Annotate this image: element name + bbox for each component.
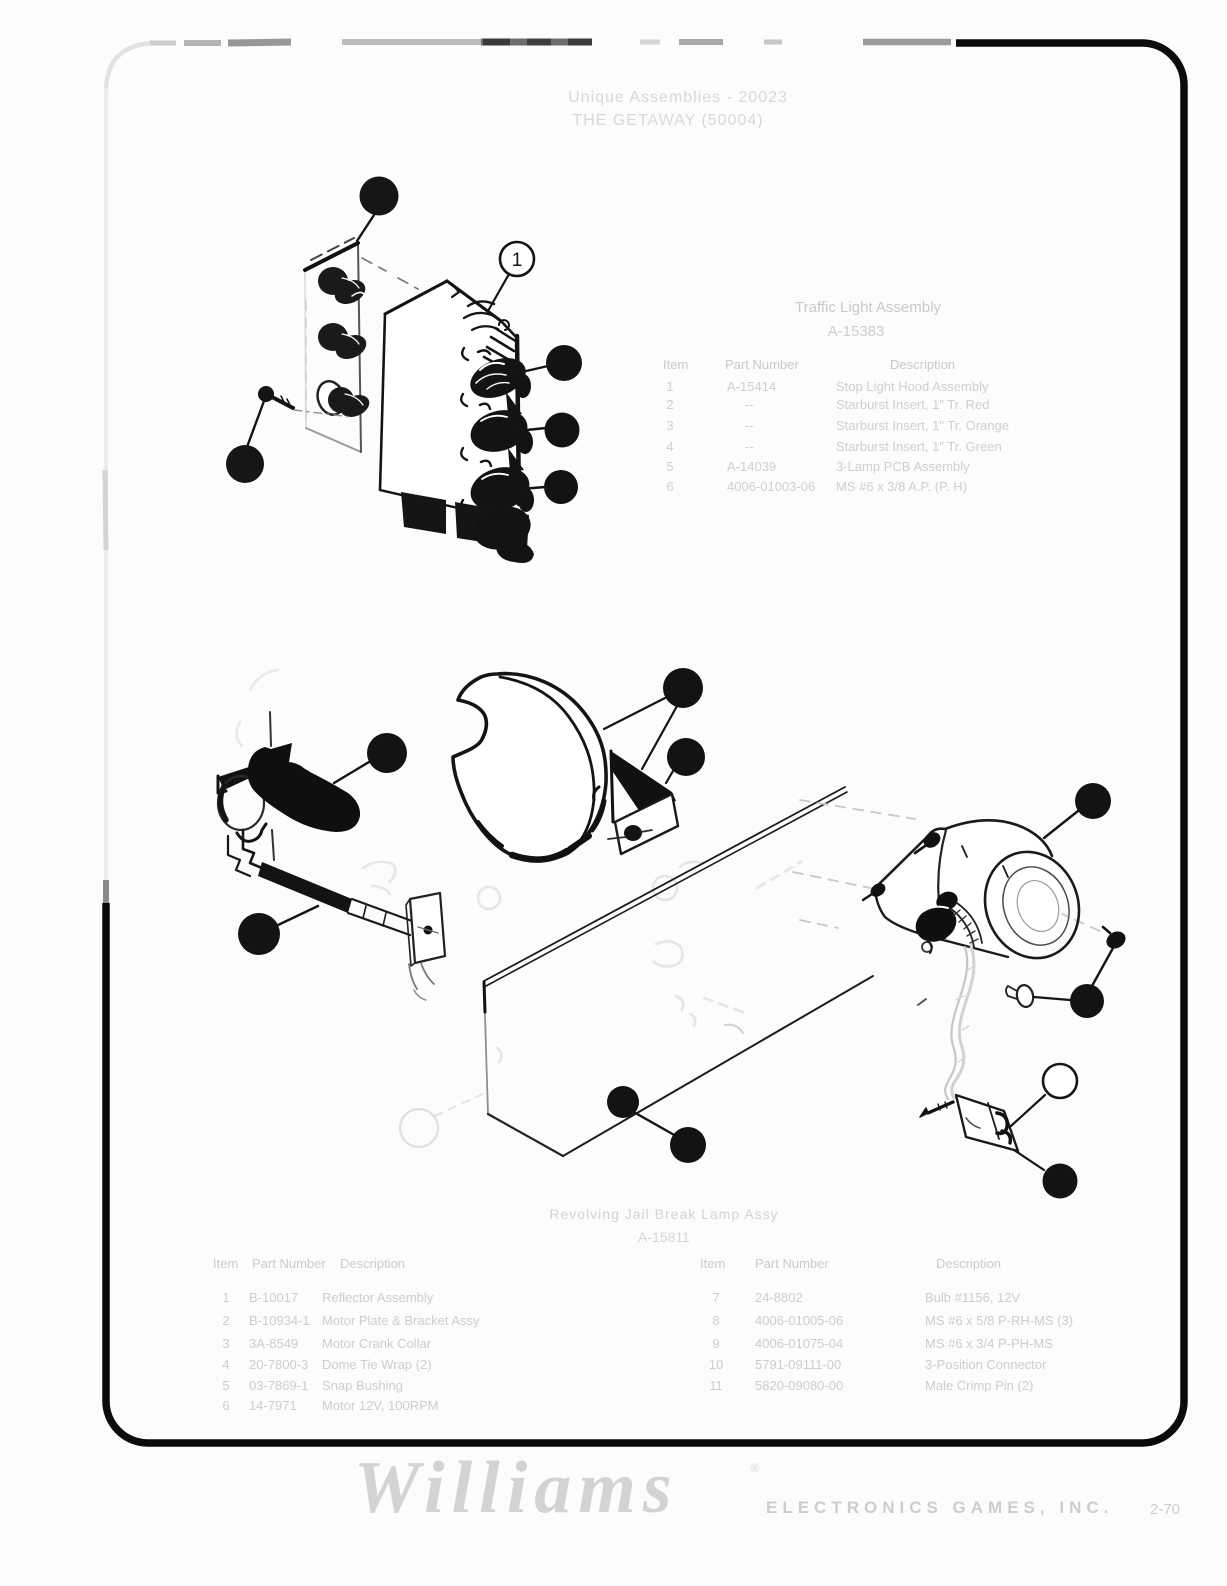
svg-text:Part Number: Part Number xyxy=(252,1256,326,1271)
svg-text:20-7800-3: 20-7800-3 xyxy=(249,1357,308,1372)
svg-text:Part Number: Part Number xyxy=(725,357,799,372)
svg-text:3: 3 xyxy=(222,1336,229,1351)
svg-text:Bulb #1156, 12V: Bulb #1156, 12V xyxy=(925,1290,1020,1305)
svg-text:3-Position Connector: 3-Position Connector xyxy=(925,1357,1047,1372)
svg-text:2: 2 xyxy=(222,1313,229,1328)
svg-text:6: 6 xyxy=(666,479,673,494)
svg-text:03-7869-1: 03-7869-1 xyxy=(249,1378,308,1393)
svg-text:4006-01075-04: 4006-01075-04 xyxy=(755,1336,843,1351)
svg-text:ELECTRONICS GAMES, INC.: ELECTRONICS GAMES, INC. xyxy=(766,1498,1113,1517)
svg-text:Revolving Jail Break Lamp Assy: Revolving Jail Break Lamp Assy xyxy=(549,1206,778,1222)
svg-text:5: 5 xyxy=(666,459,673,474)
svg-text:3: 3 xyxy=(666,418,673,433)
svg-text:--: -- xyxy=(745,439,754,454)
svg-text:Starburst Insert, 1" Tr. Orang: Starburst Insert, 1" Tr. Orange xyxy=(836,418,1009,433)
svg-text:Description: Description xyxy=(890,357,955,372)
svg-text:Reflector Assembly: Reflector Assembly xyxy=(322,1290,434,1305)
svg-text:10: 10 xyxy=(709,1357,723,1372)
svg-text:®: ® xyxy=(750,1460,760,1475)
svg-text:5820-09080-00: 5820-09080-00 xyxy=(755,1378,843,1393)
svg-text:3A-8549: 3A-8549 xyxy=(249,1336,298,1351)
svg-text:Description: Description xyxy=(936,1256,1001,1271)
svg-text:24-8802: 24-8802 xyxy=(755,1290,803,1305)
svg-text:Description: Description xyxy=(340,1256,405,1271)
svg-text:3-Lamp PCB Assembly: 3-Lamp PCB Assembly xyxy=(836,459,970,474)
svg-text:2: 2 xyxy=(666,397,673,412)
svg-text:Item: Item xyxy=(700,1256,725,1271)
svg-text:4006-01003-06: 4006-01003-06 xyxy=(727,479,815,494)
svg-text:--: -- xyxy=(745,418,754,433)
svg-text:Item: Item xyxy=(663,357,688,372)
svg-text:Snap Bushing: Snap Bushing xyxy=(322,1378,403,1393)
svg-text:A-15811: A-15811 xyxy=(638,1229,690,1245)
svg-text:Part Number: Part Number xyxy=(755,1256,829,1271)
svg-text:Traffic Light Assembly: Traffic Light Assembly xyxy=(795,299,941,316)
svg-text:6: 6 xyxy=(222,1398,229,1413)
svg-text:Stop Light Hood Assembly: Stop Light Hood Assembly xyxy=(836,379,989,394)
svg-text:Motor 12V, 100RPM: Motor 12V, 100RPM xyxy=(322,1398,439,1413)
svg-text:--: -- xyxy=(745,397,754,412)
svg-text:4: 4 xyxy=(222,1357,229,1372)
svg-text:Starburst Insert, 1" Tr. Green: Starburst Insert, 1" Tr. Green xyxy=(836,439,1002,454)
svg-text:A-15414: A-15414 xyxy=(727,379,776,394)
svg-text:A-15383: A-15383 xyxy=(828,323,885,340)
svg-text:7: 7 xyxy=(712,1290,719,1305)
svg-text:Male Crimp Pin (2): Male Crimp Pin (2) xyxy=(925,1378,1033,1393)
svg-text:THE GETAWAY (50004): THE GETAWAY (50004) xyxy=(572,112,763,129)
svg-text:Williams: Williams xyxy=(354,1447,679,1529)
svg-text:2-70: 2-70 xyxy=(1150,1501,1180,1518)
svg-text:9: 9 xyxy=(712,1336,719,1351)
svg-text:4006-01005-06: 4006-01005-06 xyxy=(755,1313,843,1328)
svg-text:14-7971: 14-7971 xyxy=(249,1398,297,1413)
svg-text:4: 4 xyxy=(666,439,673,454)
svg-text:A-14039: A-14039 xyxy=(727,459,776,474)
svg-text:1: 1 xyxy=(222,1290,229,1305)
svg-text:B-10934-1: B-10934-1 xyxy=(249,1313,310,1328)
svg-text:MS #6 x 3/4 P-PH-MS: MS #6 x 3/4 P-PH-MS xyxy=(925,1336,1053,1351)
svg-text:11: 11 xyxy=(709,1378,723,1393)
svg-text:Motor Crank Collar: Motor Crank Collar xyxy=(322,1336,432,1351)
svg-text:5791-09111-00: 5791-09111-00 xyxy=(755,1357,841,1372)
svg-text:MS #6 x 3/8 A.P. (P. H): MS #6 x 3/8 A.P. (P. H) xyxy=(836,479,967,494)
svg-text:B-10017: B-10017 xyxy=(249,1290,298,1305)
svg-text:Unique Assemblies - 20023: Unique Assemblies - 20023 xyxy=(568,89,788,106)
svg-text:Motor Plate & Bracket Assy: Motor Plate & Bracket Assy xyxy=(322,1313,480,1328)
svg-text:5: 5 xyxy=(222,1378,229,1393)
svg-text:MS #6 x 5/8 P-RH-MS (3): MS #6 x 5/8 P-RH-MS (3) xyxy=(925,1313,1073,1328)
svg-text:Dome Tie Wrap (2): Dome Tie Wrap (2) xyxy=(322,1357,432,1372)
svg-text:Item: Item xyxy=(213,1256,238,1271)
svg-text:8: 8 xyxy=(712,1313,719,1328)
svg-text:Starburst Insert, 1" Tr. Red: Starburst Insert, 1" Tr. Red xyxy=(836,397,989,412)
svg-text:1: 1 xyxy=(512,250,523,271)
svg-text:1: 1 xyxy=(666,379,673,394)
